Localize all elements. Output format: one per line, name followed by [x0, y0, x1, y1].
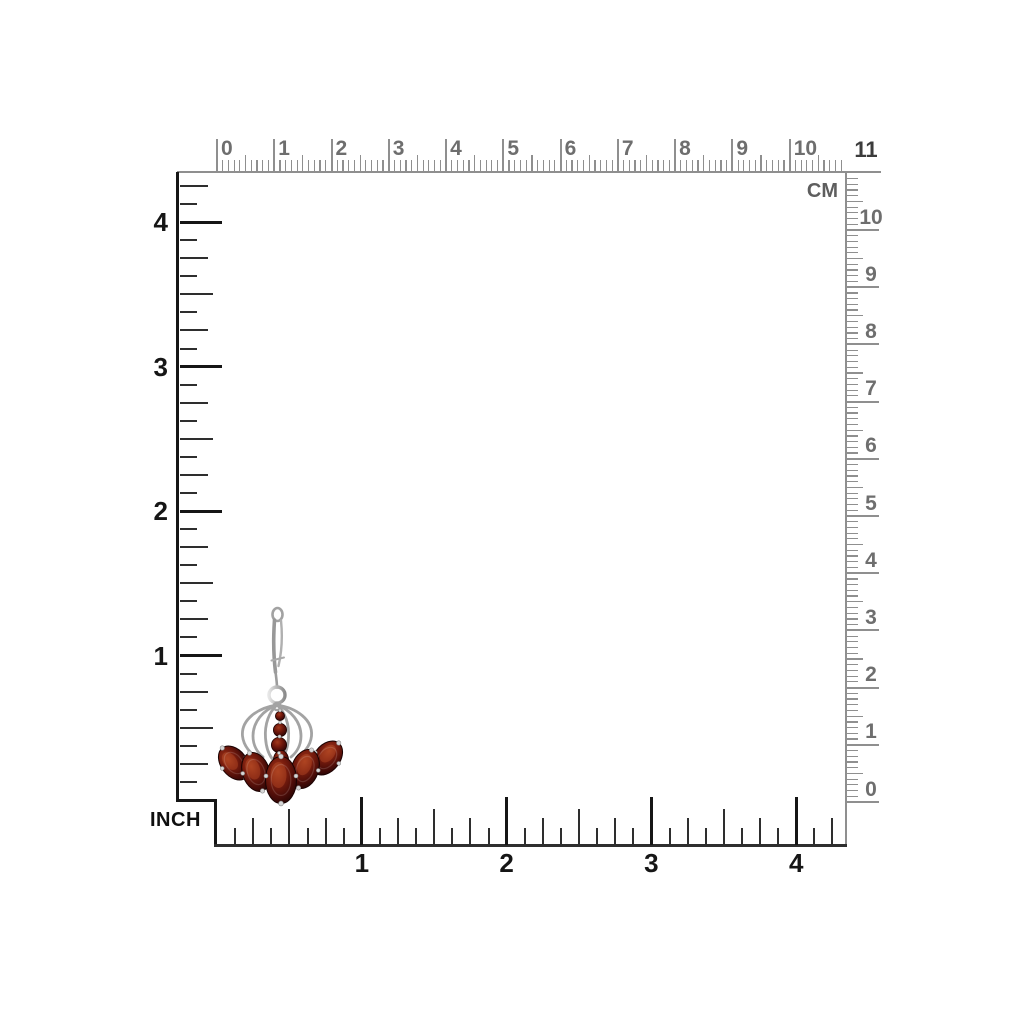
inch-tick — [180, 654, 222, 657]
cm-tick — [755, 160, 756, 172]
cm-scale-number: 9 — [856, 264, 886, 285]
cm-tick — [846, 235, 858, 236]
cm-tick — [846, 533, 858, 534]
cm-tick — [577, 160, 578, 172]
cm-tick — [846, 744, 879, 746]
inch-scale-number: 3 — [138, 352, 168, 382]
cm-tick — [560, 139, 562, 172]
inch-tick — [180, 528, 197, 530]
inch-scale-number: 1 — [138, 641, 168, 671]
cm-tick — [846, 343, 879, 345]
cm-tick — [789, 139, 791, 172]
cm-tick — [411, 160, 412, 172]
cm-tick — [846, 595, 858, 596]
inch-tick — [343, 828, 345, 845]
cm-tick — [497, 160, 498, 172]
inch-tick — [180, 745, 197, 747]
inch-tick — [180, 384, 197, 386]
cm-tick — [715, 160, 716, 172]
cm-tick — [772, 160, 773, 172]
cm-tick — [795, 160, 796, 172]
inch-tick — [488, 828, 490, 845]
cm-tick — [846, 298, 858, 299]
inch-tick — [180, 492, 197, 494]
cm-tick — [703, 155, 704, 172]
cm-tick — [285, 160, 286, 172]
cm-tick — [726, 160, 727, 172]
cm-tick — [256, 160, 257, 172]
cm-scale-number: 8 — [856, 321, 886, 342]
cm-scale-number: 7 — [622, 138, 634, 159]
cm-tick — [835, 160, 836, 172]
cm-tick — [846, 350, 858, 351]
cm-tick — [451, 160, 452, 172]
cm-tick — [502, 139, 504, 172]
cm-tick — [846, 401, 879, 403]
cm-ruler-top-line — [177, 171, 881, 173]
inch-tick — [596, 828, 598, 845]
inch-tick — [759, 818, 761, 845]
cm-tick — [846, 201, 863, 202]
cm-tick — [480, 160, 481, 172]
inch-tick — [433, 809, 435, 845]
cm-tick — [846, 464, 858, 465]
cm-tick — [697, 160, 698, 172]
cm-tick — [846, 693, 858, 694]
inch-tick — [705, 828, 707, 845]
cm-tick — [302, 155, 303, 172]
cm-scale-number: 3 — [856, 607, 886, 628]
inch-scale-number: 3 — [631, 848, 671, 878]
cm-tick — [245, 155, 246, 172]
cm-tick — [846, 458, 879, 460]
inch-tick — [180, 402, 208, 404]
cm-tick — [846, 538, 858, 539]
inch-tick — [180, 763, 208, 765]
cm-tick — [428, 160, 429, 172]
cm-tick — [394, 160, 395, 172]
cm-tick — [846, 572, 879, 574]
cm-tick — [634, 160, 635, 172]
cm-tick — [846, 286, 879, 288]
cm-tick — [846, 252, 858, 253]
inch-tick — [560, 828, 562, 845]
cm-tick — [846, 544, 863, 545]
cm-tick — [600, 160, 601, 172]
cm-tick — [216, 139, 218, 172]
cm-tick — [812, 160, 813, 172]
inch-scale-number: 2 — [487, 848, 527, 878]
cm-tick — [743, 160, 744, 172]
inch-tick — [180, 546, 208, 548]
inch-scale-number: 4 — [776, 848, 816, 878]
inch-tick — [180, 618, 208, 620]
cm-tick — [783, 160, 784, 172]
cm-tick — [801, 160, 802, 172]
cm-tick — [841, 160, 842, 172]
inch-tick — [795, 797, 798, 845]
cm-tick — [846, 418, 858, 419]
cm-scale-number: 4 — [450, 138, 462, 159]
cm-tick — [846, 309, 858, 310]
cm-tick — [652, 160, 653, 172]
inch-tick — [288, 809, 290, 845]
cm-tick — [617, 139, 619, 172]
cm-tick — [846, 756, 858, 757]
cm-tick — [342, 160, 343, 172]
inch-ruler-bottom-line — [214, 844, 847, 847]
cm-tick — [846, 475, 858, 476]
inch-tick — [307, 828, 309, 845]
cm-tick — [674, 139, 676, 172]
inch-ruler-step-vertical — [214, 799, 217, 846]
cm-tick — [612, 160, 613, 172]
cm-tick — [680, 160, 681, 172]
inch-tick — [831, 818, 833, 845]
cm-tick — [846, 658, 863, 659]
cm-tick — [846, 195, 858, 196]
cm-tick — [846, 584, 858, 585]
cm-tick — [382, 160, 383, 172]
cm-tick — [594, 160, 595, 172]
cm-tick — [720, 160, 721, 172]
cm-unit-label: CM — [768, 180, 838, 202]
cm-tick — [846, 487, 863, 488]
cm-tick — [846, 229, 879, 231]
inch-tick — [180, 727, 213, 729]
cm-tick — [474, 155, 475, 172]
inch-tick — [234, 828, 236, 845]
cm-tick — [239, 160, 240, 172]
cm-scale-number: 0 — [221, 138, 233, 159]
inch-tick — [180, 456, 197, 458]
cm-tick — [846, 750, 858, 751]
cm-scale-number: 4 — [856, 550, 886, 571]
inch-tick — [360, 797, 363, 845]
cm-tick — [846, 407, 858, 408]
cm-scale-number: 1 — [856, 721, 886, 742]
cm-tick — [657, 160, 658, 172]
cm-tick — [423, 160, 424, 172]
inch-tick — [650, 797, 653, 845]
cm-tick — [846, 355, 858, 356]
cm-tick — [319, 160, 320, 172]
cm-tick — [468, 160, 469, 172]
cm-tick — [371, 160, 372, 172]
garnet-chandelier-earring — [205, 603, 355, 813]
cm-tick — [846, 424, 858, 425]
cm-tick — [640, 160, 641, 172]
inch-tick — [270, 828, 272, 845]
cm-tick — [400, 160, 401, 172]
inch-tick — [379, 828, 381, 845]
inch-tick — [180, 510, 222, 513]
cm-tick — [846, 515, 879, 517]
inch-tick — [180, 438, 213, 440]
inch-tick — [415, 828, 417, 845]
cm-tick — [846, 470, 858, 471]
cm-end-value-label: 11 — [846, 138, 886, 162]
inch-tick — [180, 564, 197, 566]
cm-tick — [222, 160, 223, 172]
cm-tick — [846, 578, 858, 579]
cm-tick — [731, 139, 733, 172]
cm-tick — [846, 698, 858, 699]
cm-tick — [749, 160, 750, 172]
cm-tick — [549, 160, 550, 172]
inch-tick — [813, 828, 815, 845]
cm-tick — [669, 160, 670, 172]
cm-scale-number: 1 — [278, 138, 290, 159]
inch-tick — [505, 797, 508, 845]
cm-scale-number: 0 — [856, 779, 886, 800]
inch-ruler-step-horizontal — [176, 799, 217, 802]
cm-tick — [434, 160, 435, 172]
cm-scale-number: 9 — [736, 138, 748, 159]
inch-tick — [325, 818, 327, 845]
inch-tick — [180, 221, 222, 224]
cm-tick — [846, 178, 858, 179]
inch-tick — [180, 600, 197, 602]
cm-tick — [846, 641, 858, 642]
inch-tick — [180, 185, 208, 187]
cm-scale-number: 3 — [393, 138, 405, 159]
cm-tick — [663, 160, 664, 172]
cm-tick — [778, 160, 779, 172]
cm-tick — [846, 647, 858, 648]
cm-tick — [348, 160, 349, 172]
cm-tick — [846, 687, 879, 689]
cm-tick — [234, 160, 235, 172]
inch-tick — [687, 818, 689, 845]
cm-tick — [846, 590, 858, 591]
inch-tick — [180, 329, 208, 331]
cm-tick — [377, 160, 378, 172]
cm-tick — [273, 139, 275, 172]
inch-tick — [180, 781, 197, 783]
cm-tick — [537, 160, 538, 172]
inch-tick — [524, 828, 526, 845]
cm-tick — [846, 304, 858, 305]
cm-tick — [846, 361, 858, 362]
cm-tick — [846, 412, 858, 413]
cm-tick — [846, 773, 863, 774]
cm-tick — [457, 160, 458, 172]
cm-tick — [760, 155, 761, 172]
cm-tick — [846, 653, 858, 654]
cm-tick — [251, 160, 252, 172]
cm-tick — [846, 521, 858, 522]
cm-tick — [445, 139, 447, 172]
cm-tick — [589, 155, 590, 172]
inch-tick — [180, 203, 197, 205]
inch-tick — [180, 691, 208, 693]
cm-tick — [417, 155, 418, 172]
cm-tick — [440, 160, 441, 172]
inch-tick — [252, 818, 254, 845]
cm-tick — [846, 767, 858, 768]
cm-tick — [646, 155, 647, 172]
cm-tick — [846, 527, 858, 528]
cm-tick — [806, 160, 807, 172]
inch-tick — [180, 257, 208, 259]
inch-tick — [469, 818, 471, 845]
cm-tick — [846, 258, 863, 259]
cm-tick — [526, 160, 527, 172]
cm-tick — [331, 139, 333, 172]
inch-tick — [180, 420, 197, 422]
inch-tick — [180, 365, 222, 368]
cm-scale-number: 6 — [565, 138, 577, 159]
cm-tick — [566, 160, 567, 172]
cm-tick — [738, 160, 739, 172]
inch-tick — [397, 818, 399, 845]
cm-tick — [846, 704, 858, 705]
cm-tick — [279, 160, 280, 172]
cm-tick — [228, 160, 229, 172]
cm-tick — [846, 629, 879, 631]
inch-tick — [180, 293, 213, 295]
cm-tick — [846, 636, 858, 637]
cm-scale-number: 10 — [856, 207, 886, 228]
cm-tick — [829, 160, 830, 172]
cm-tick — [354, 160, 355, 172]
cm-scale-number: 5 — [856, 493, 886, 514]
measurement-grid-product-photo: CM 11 INCH — [0, 0, 1010, 1010]
cm-tick — [846, 184, 858, 185]
cm-scale-number: 10 — [794, 138, 817, 159]
cm-tick — [337, 160, 338, 172]
cm-scale-number: 6 — [856, 435, 886, 456]
inch-tick — [451, 828, 453, 845]
inch-tick — [180, 673, 197, 675]
inch-tick — [180, 582, 213, 584]
cm-tick — [463, 160, 464, 172]
cm-scale-number: 8 — [679, 138, 691, 159]
cm-tick — [543, 160, 544, 172]
cm-tick — [846, 372, 863, 373]
inch-scale-number: 1 — [342, 848, 382, 878]
cm-tick — [846, 315, 863, 316]
inch-tick — [180, 474, 208, 476]
cm-tick — [823, 160, 824, 172]
inch-tick — [669, 828, 671, 845]
cm-tick — [314, 160, 315, 172]
cm-tick — [629, 160, 630, 172]
cm-tick — [606, 160, 607, 172]
cm-tick — [508, 160, 509, 172]
cm-tick — [365, 160, 366, 172]
cm-tick — [846, 292, 858, 293]
inch-tick — [180, 239, 197, 241]
cm-tick — [846, 189, 858, 190]
cm-tick — [291, 160, 292, 172]
inch-tick — [180, 636, 197, 638]
cm-tick — [360, 155, 361, 172]
cm-tick — [486, 160, 487, 172]
cm-tick — [846, 481, 858, 482]
inch-tick — [542, 818, 544, 845]
cm-tick — [583, 160, 584, 172]
inch-tick — [723, 809, 725, 845]
cm-tick — [268, 160, 269, 172]
inch-tick — [777, 828, 779, 845]
cm-tick — [692, 160, 693, 172]
cm-tick — [531, 155, 532, 172]
connector-ring-icon — [269, 687, 285, 703]
cm-scale-number: 7 — [856, 378, 886, 399]
cm-tick — [554, 160, 555, 172]
cm-tick — [388, 139, 390, 172]
cm-tick — [846, 761, 858, 762]
cm-scale-number: 5 — [507, 138, 519, 159]
cm-scale-number: 2 — [336, 138, 348, 159]
inch-tick — [180, 348, 197, 350]
cm-tick — [846, 710, 858, 711]
cm-tick — [846, 601, 863, 602]
inch-tick — [180, 311, 197, 313]
cm-tick — [846, 716, 863, 717]
inch-tick — [180, 275, 197, 277]
cm-tick — [846, 430, 863, 431]
cm-tick — [846, 247, 858, 248]
inch-ruler-left-line — [176, 172, 179, 801]
cm-tick — [571, 160, 572, 172]
inch-scale-number: 2 — [138, 496, 168, 526]
cm-tick — [766, 160, 767, 172]
cm-tick — [623, 160, 624, 172]
leverback-wire-icon — [272, 608, 285, 688]
cm-tick — [297, 160, 298, 172]
cm-tick — [405, 160, 406, 172]
inch-tick — [632, 828, 634, 845]
inch-tick — [180, 709, 197, 711]
inch-tick — [741, 828, 743, 845]
inch-scale-number: 4 — [138, 207, 168, 237]
cm-tick — [262, 160, 263, 172]
cm-tick — [491, 160, 492, 172]
cm-tick — [325, 160, 326, 172]
cm-tick — [308, 160, 309, 172]
cm-tick — [686, 160, 687, 172]
cm-scale-number: 2 — [856, 664, 886, 685]
inch-tick — [614, 818, 616, 845]
cm-tick — [846, 367, 858, 368]
cm-tick — [846, 801, 879, 803]
inch-tick — [578, 809, 580, 845]
cm-tick — [709, 160, 710, 172]
cm-tick — [846, 241, 858, 242]
cm-tick — [514, 160, 515, 172]
cm-tick — [520, 160, 521, 172]
cm-tick — [818, 155, 819, 172]
